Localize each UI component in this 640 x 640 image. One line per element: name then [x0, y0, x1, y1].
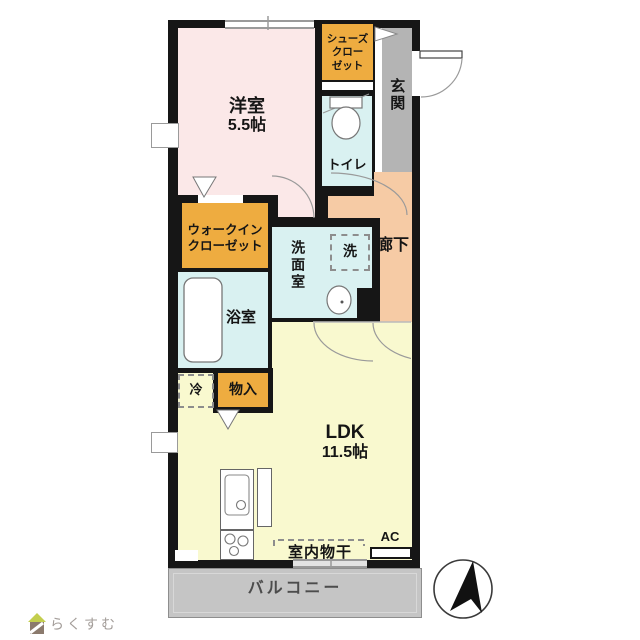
wic-line2: クローゼット — [187, 238, 262, 254]
label-indoor-drying: 室内物干 — [275, 544, 365, 561]
ldk-size: 11.5帖 — [322, 444, 368, 462]
shoe-closet-line2: クロー — [332, 46, 364, 60]
western-room-door-arc — [272, 176, 314, 218]
label-washroom: 洗面室 — [290, 240, 306, 291]
label-toilet: トイレ — [320, 158, 374, 173]
logo-text: らくすむ — [50, 616, 118, 632]
hallway-door-arc — [331, 173, 407, 215]
label-washer-space: 洗 — [330, 243, 370, 259]
label-ac: AC — [374, 530, 406, 545]
floorplan-page: { "plan": { "rooms": { "western_room": {… — [0, 0, 640, 640]
stove-burner-1 — [225, 534, 235, 544]
toilet-bowl-icon — [332, 107, 360, 139]
label-bathroom: 浴室 — [216, 309, 266, 326]
label-fridge-space: 冷 — [178, 383, 214, 398]
wic-line1: ウォークイン — [187, 222, 262, 238]
wic-door-swing-icon — [193, 177, 216, 197]
ldk-door-arc-right — [373, 323, 432, 361]
label-ldk: LDK 11.5帖 — [285, 419, 405, 465]
entrance-door-leaf — [420, 51, 462, 58]
label-entrance: 玄関 — [388, 78, 405, 112]
label-storage: 物入 — [218, 381, 268, 397]
label-hallway: 廊下 — [373, 237, 413, 255]
label-balcony: バルコニー — [168, 580, 422, 598]
western-room-size: 5.5帖 — [228, 117, 266, 135]
stove-burner-2 — [238, 536, 248, 546]
label-shoe-closet: シューズ クロー ゼット — [322, 30, 373, 76]
label-walk-in-closet: ウォークイン クローゼット — [182, 222, 268, 254]
storage-door-swing-icon — [217, 410, 239, 429]
label-western-room: 洋室 5.5帖 — [197, 92, 297, 140]
entrance-door-arc — [421, 59, 462, 97]
shoe-closet-line1: シューズ — [327, 33, 368, 47]
kitchen-basin-icon — [225, 475, 249, 515]
washroom-sink-faucet-dot — [341, 301, 344, 304]
ldk-door-arc-left — [314, 323, 373, 361]
ldk-name: LDK — [325, 422, 364, 444]
western-room-name: 洋室 — [229, 96, 265, 117]
shoe-closet-door-swing-icon — [375, 27, 397, 41]
shoe-closet-line3: ゼット — [332, 60, 364, 74]
house-logo-icon — [28, 613, 46, 634]
toilet-tank-icon — [330, 97, 362, 108]
stove-burner-3 — [230, 547, 239, 556]
kitchen-faucet-icon — [237, 501, 246, 510]
washroom-sink-icon — [327, 286, 351, 314]
